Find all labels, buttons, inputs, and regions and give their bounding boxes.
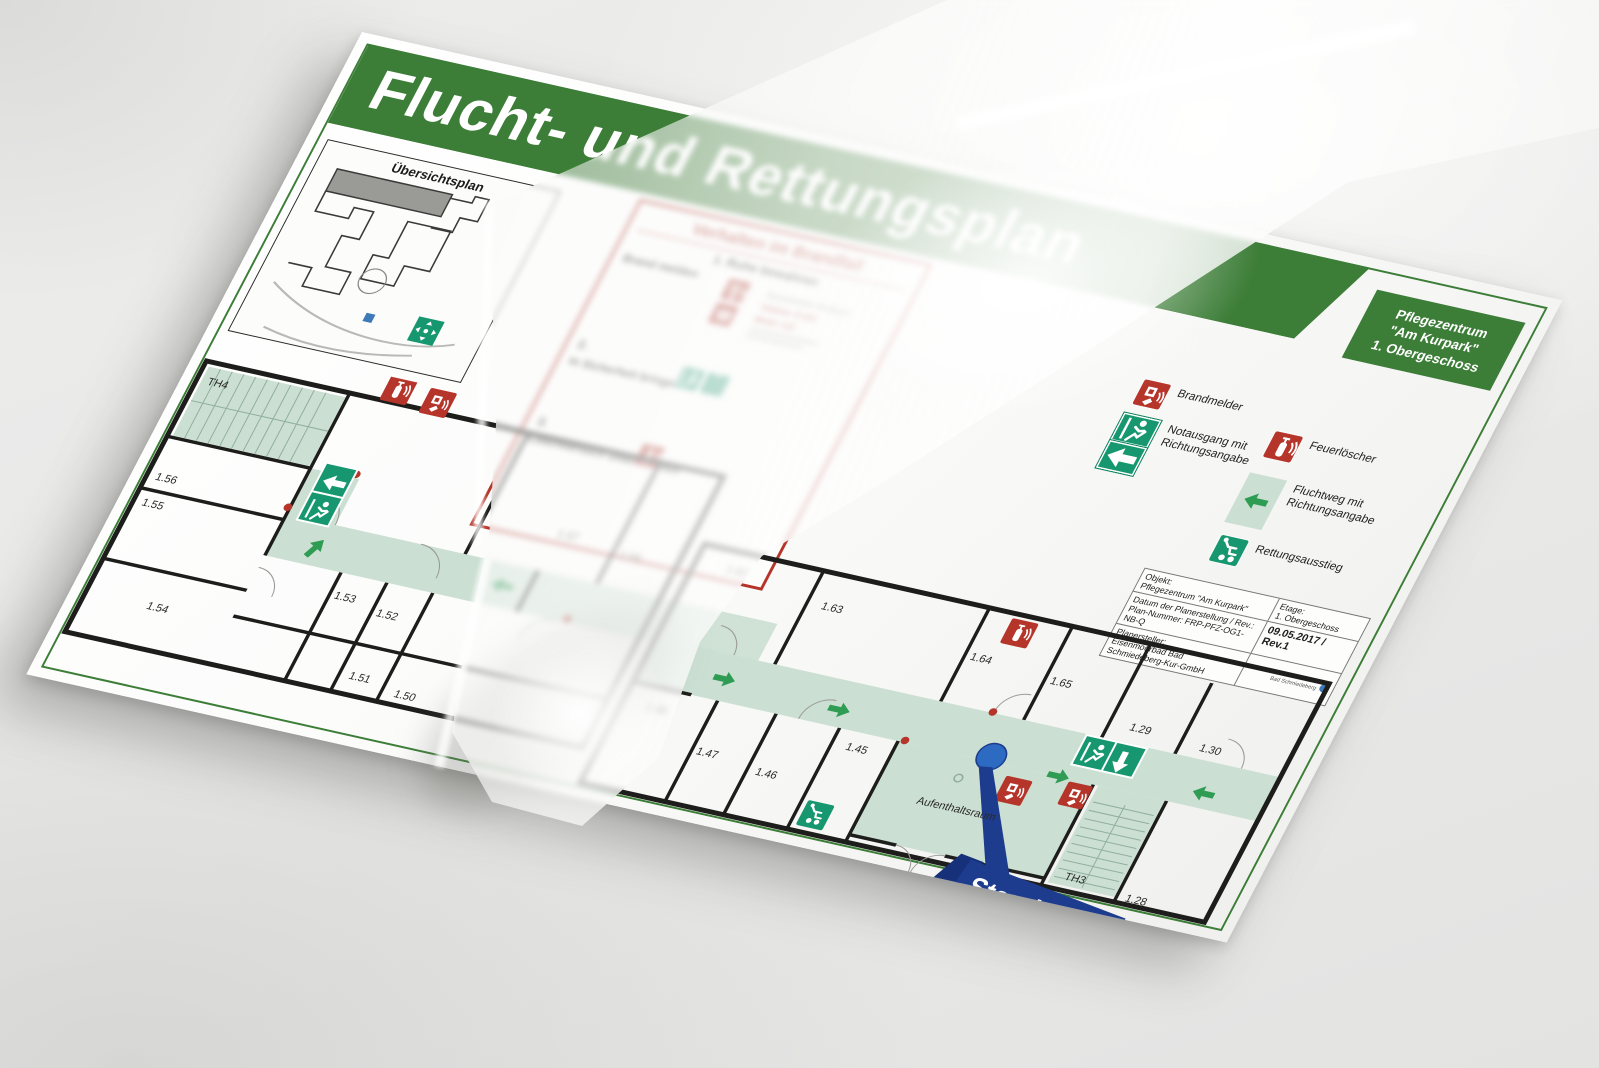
room-label: 1.63 bbox=[819, 601, 846, 616]
room-label: 1.56 bbox=[153, 471, 180, 486]
room-label: 1.45 bbox=[843, 741, 870, 756]
assembly-point-icon bbox=[407, 316, 445, 346]
room-label: 1.29 bbox=[1127, 722, 1154, 737]
extinguisher-icon bbox=[1000, 618, 1039, 649]
room-label: 1.50 bbox=[391, 689, 418, 704]
photo-scene: Flucht- und Rettungsplan Pflegezentrum "… bbox=[0, 0, 1599, 1068]
room-label: 1.53 bbox=[332, 590, 359, 605]
room-label: 1.51 bbox=[346, 670, 373, 685]
room-label: 1.55 bbox=[139, 497, 166, 512]
room-label: 1.54 bbox=[144, 601, 171, 616]
info-point-icon bbox=[362, 313, 375, 323]
room-label: 1.30 bbox=[1197, 743, 1224, 758]
room-label: 1.47 bbox=[694, 746, 721, 761]
room-label: 1.46 bbox=[753, 766, 780, 781]
highlighted-building bbox=[326, 169, 453, 217]
room-label: 1.65 bbox=[1048, 675, 1075, 690]
room-label: 1.52 bbox=[374, 608, 401, 623]
room-label: 1.64 bbox=[968, 651, 995, 666]
